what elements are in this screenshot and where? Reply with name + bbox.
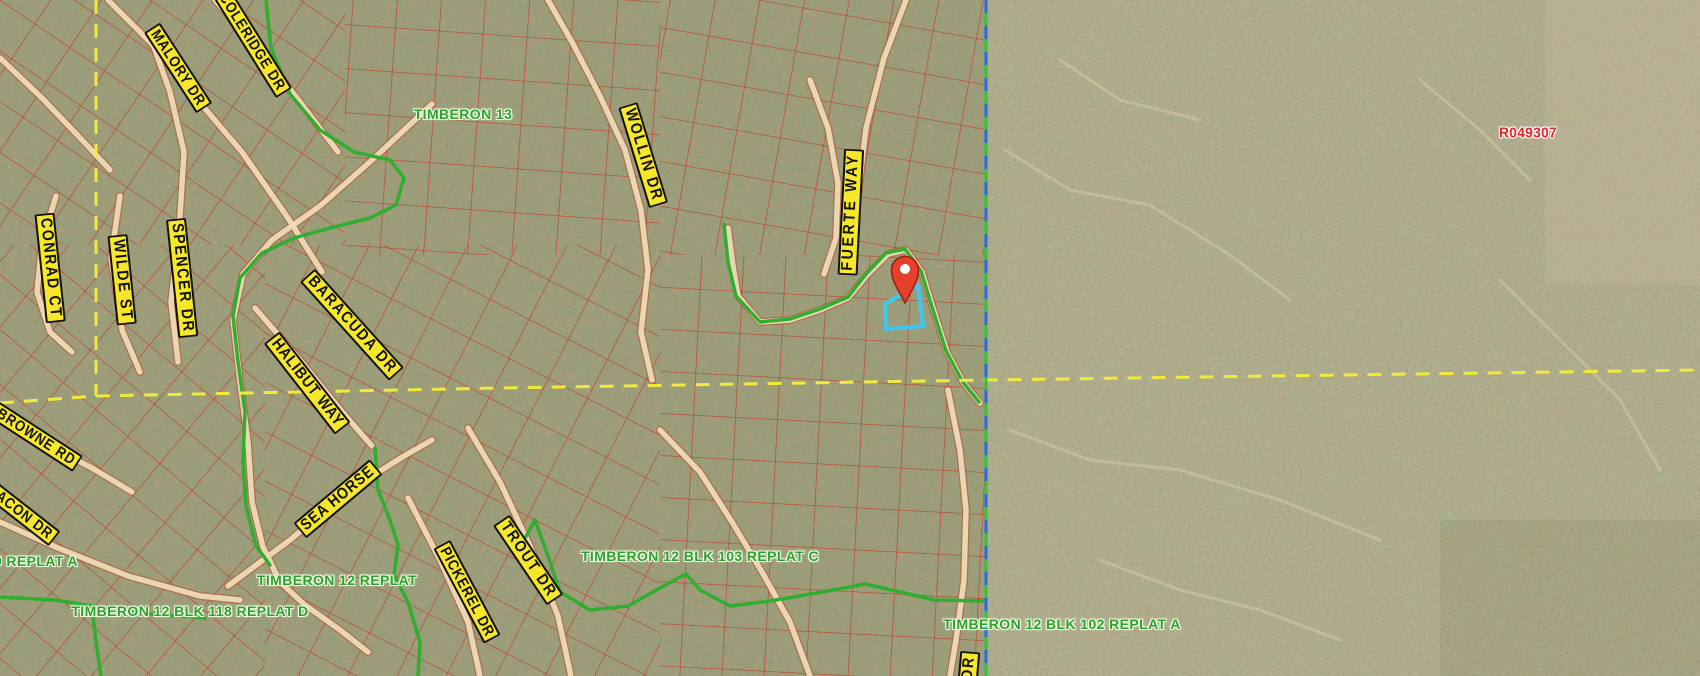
street-label: WILDE ST [107, 234, 137, 326]
subdivision-label: 0 REPLAT A [0, 553, 78, 569]
subdivision-label: TIMBERON 12 BLK 118 REPLAT D [71, 603, 308, 619]
street-label: CONRAD CT [34, 213, 66, 324]
map-canvas[interactable]: MALORY DRCOLERIDGE DRCONRAD CTWILDE STSP… [0, 0, 1700, 676]
map-labels-layer: MALORY DRCOLERIDGE DRCONRAD CTWILDE STSP… [0, 0, 1700, 676]
street-label: DR [957, 651, 980, 676]
subdivision-label: TIMBERON 12 REPLAT [257, 572, 417, 588]
street-label: TROUT DR [493, 515, 563, 606]
subdivision-label: TIMBERON 13 [414, 106, 513, 122]
parcel-id-label: R049307 [1499, 125, 1557, 142]
street-label: WOLLIN DR [618, 102, 668, 208]
street-label: HALIBUT WAY [264, 331, 351, 434]
street-label: SEA HORSE [293, 459, 382, 538]
street-label: MALORY DR [144, 23, 212, 114]
street-label: FUERTE WAY [838, 148, 865, 275]
subdivision-label: TIMBERON 12 BLK 103 REPLAT C [581, 548, 819, 564]
street-label: COLERIDGE DR [212, 0, 292, 98]
subdivision-label: TIMBERON 12 BLK 102 REPLAT A [943, 616, 1181, 632]
street-label: BACON DR [0, 478, 60, 547]
street-label: PICKEREL DR [433, 540, 501, 644]
street-label: SPENCER DR [166, 218, 199, 338]
street-label: BARACUDA DR [300, 269, 404, 382]
street-label: BROWNE RD [0, 402, 83, 472]
